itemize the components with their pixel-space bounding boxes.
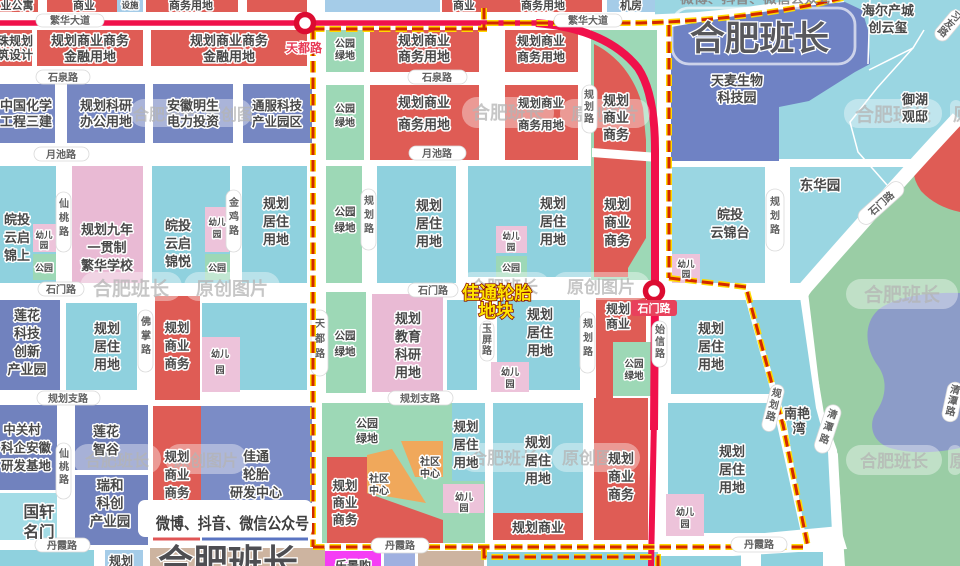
svg-text:规划路: 规划路 — [583, 317, 594, 358]
svg-text:金融用地: 金融用地 — [63, 49, 116, 64]
svg-text:科技园: 科技园 — [717, 90, 756, 105]
svg-text:规划九年: 规划九年 — [81, 222, 133, 237]
svg-text:规划商业: 规划商业 — [398, 95, 450, 110]
svg-text:天都路: 天都路 — [314, 318, 326, 360]
svg-text:规划支路: 规划支路 — [48, 392, 89, 405]
svg-text:天麦生物: 天麦生物 — [711, 73, 763, 88]
svg-text:绿地: 绿地 — [335, 221, 356, 234]
svg-text:用地: 用地 — [526, 343, 553, 358]
svg-text:石泉路: 石泉路 — [47, 71, 79, 84]
svg-text:绿地: 绿地 — [356, 431, 378, 445]
svg-text:皖投: 皖投 — [4, 212, 30, 227]
svg-text:产业园: 产业园 — [90, 513, 131, 529]
svg-text:云锦台: 云锦台 — [710, 225, 749, 240]
svg-text:珠规划: 珠规划 — [0, 33, 33, 48]
svg-text:居住: 居住 — [698, 339, 724, 354]
svg-text:幼儿: 幼儿 — [677, 259, 695, 269]
svg-text:园: 园 — [680, 519, 689, 529]
svg-text:合肥班长: 合肥班长 — [93, 277, 170, 300]
svg-text:仙桃路: 仙桃路 — [59, 197, 70, 238]
svg-text:研发基地: 研发基地 — [1, 458, 52, 473]
svg-text:规划路: 规划路 — [364, 194, 375, 235]
svg-text:用地: 用地 — [697, 357, 724, 372]
svg-text:观邸: 观邸 — [902, 109, 928, 124]
svg-text:工程三建: 工程三建 — [0, 114, 52, 129]
svg-text:安徽明生: 安徽明生 — [167, 98, 219, 113]
svg-text:绿地: 绿地 — [335, 345, 356, 358]
svg-text:规划路: 规划路 — [584, 88, 595, 125]
svg-text:规划: 规划 — [540, 196, 566, 211]
svg-text:幼儿: 幼儿 — [501, 366, 519, 377]
svg-text:教育: 教育 — [394, 329, 421, 344]
svg-text:用地: 用地 — [539, 232, 566, 247]
svg-text:丹霞路: 丹霞路 — [385, 539, 416, 552]
svg-text:规划商业商务: 规划商业商务 — [51, 33, 130, 48]
svg-text:规划科研: 规划科研 — [80, 98, 132, 113]
svg-text:规划: 规划 — [416, 198, 442, 213]
svg-text:商务用地: 商务用地 — [398, 49, 450, 64]
svg-text:规划: 规划 — [263, 196, 289, 211]
svg-text:佳通: 佳通 — [243, 449, 269, 464]
svg-text:用地: 用地 — [93, 357, 120, 372]
svg-text:公园: 公园 — [35, 263, 53, 273]
svg-text:科研: 科研 — [395, 347, 421, 362]
svg-text:公园: 公园 — [335, 330, 356, 342]
svg-text:用地: 用地 — [394, 365, 421, 380]
svg-text:佳通轮胎: 佳通轮胎 — [462, 283, 532, 303]
svg-text:规划: 规划 — [527, 307, 553, 322]
svg-text:公园: 公园 — [335, 206, 356, 218]
svg-text:商业: 商业 — [608, 469, 634, 484]
svg-text:玉屏路: 玉屏路 — [481, 323, 493, 357]
svg-text:商务用地: 商务用地 — [518, 118, 564, 132]
svg-text:产业园区: 产业园区 — [252, 114, 303, 129]
svg-text:幼儿: 幼儿 — [455, 491, 473, 502]
svg-text:月池路: 月池路 — [421, 147, 453, 160]
svg-text:莲花: 莲花 — [93, 424, 119, 439]
svg-text:商务用地: 商务用地 — [398, 117, 450, 132]
svg-text:皖投: 皖投 — [717, 207, 743, 222]
svg-text:莲花: 莲花 — [14, 308, 40, 323]
svg-text:原创图片: 原创图片 — [567, 277, 635, 297]
svg-text:居住: 居住 — [525, 453, 551, 468]
svg-text:用地: 用地 — [262, 232, 289, 247]
svg-text:商务: 商务 — [603, 127, 630, 142]
svg-text:皖投: 皖投 — [165, 218, 191, 233]
svg-text:国轩: 国轩 — [23, 502, 55, 521]
svg-text:一贯制: 一贯制 — [87, 240, 126, 255]
svg-text:公园: 公园 — [335, 103, 355, 115]
svg-text:湾: 湾 — [792, 421, 805, 436]
svg-text:金融用地: 金融用地 — [202, 49, 255, 64]
svg-text:石泉路: 石泉路 — [421, 71, 453, 84]
svg-text:公园: 公园 — [356, 417, 378, 430]
svg-text:规划: 规划 — [164, 449, 189, 464]
svg-text:繁华大道: 繁华大道 — [49, 14, 90, 27]
svg-text:石门路: 石门路 — [417, 284, 449, 297]
svg-text:商务用地: 商务用地 — [169, 0, 213, 12]
svg-text:繁华学校: 繁华学校 — [81, 258, 134, 273]
svg-text:原: 原 — [953, 105, 960, 125]
svg-text:办公用地: 办公用地 — [80, 114, 132, 129]
svg-text:通服科技: 通服科技 — [252, 98, 303, 113]
svg-text:绿地: 绿地 — [335, 116, 355, 129]
svg-text:锦悦: 锦悦 — [165, 254, 191, 269]
svg-text:幼儿: 幼儿 — [676, 506, 694, 517]
svg-text:园: 园 — [459, 503, 468, 513]
svg-text:商业: 商业 — [606, 316, 630, 331]
svg-text:石门路: 石门路 — [637, 301, 672, 315]
svg-text:佛掌路: 佛掌路 — [140, 315, 152, 356]
svg-text:筑设计: 筑设计 — [0, 47, 33, 62]
svg-text:幼儿: 幼儿 — [35, 230, 53, 240]
svg-text:园: 园 — [682, 269, 691, 279]
svg-text:商业: 商业 — [332, 495, 358, 510]
svg-text:御湖: 御湖 — [901, 92, 928, 107]
svg-text:规划路: 规划路 — [770, 195, 781, 236]
svg-text:规划: 规划 — [606, 301, 630, 316]
svg-text:居住: 居住 — [540, 214, 566, 229]
svg-text:幼儿: 幼儿 — [211, 348, 229, 359]
svg-text:中国化学: 中国化学 — [0, 98, 52, 113]
svg-text:规划: 规划 — [395, 311, 421, 326]
svg-text:幼儿: 幼儿 — [208, 217, 226, 227]
svg-text:科创: 科创 — [97, 495, 124, 511]
svg-text:乐景购: 乐景购 — [335, 558, 371, 566]
svg-text:园: 园 — [507, 242, 516, 252]
svg-text:商务: 商务 — [608, 487, 635, 502]
svg-text:公园: 公园 — [208, 263, 226, 273]
svg-text:规划: 规划 — [332, 478, 357, 493]
svg-text:石门路: 石门路 — [45, 283, 77, 296]
svg-text:公园: 公园 — [624, 359, 643, 370]
svg-text:原创图片: 原创图片 — [196, 278, 268, 299]
svg-text:规划商业: 规划商业 — [517, 33, 565, 48]
svg-text:商业: 商业 — [164, 338, 190, 353]
svg-text:月池路: 月池路 — [45, 148, 77, 161]
svg-text:规划: 规划 — [698, 321, 724, 336]
svg-text:合肥班长: 合肥班长 — [690, 20, 829, 58]
svg-text:园: 园 — [505, 379, 514, 389]
svg-text:仙桃路: 仙桃路 — [59, 447, 70, 486]
svg-text:云启: 云启 — [4, 230, 30, 245]
svg-text:绿地: 绿地 — [335, 49, 355, 62]
svg-text:商业: 商业 — [73, 0, 95, 12]
svg-text:合肥班长: 合肥班长 — [158, 542, 298, 566]
svg-text:研发中心: 研发中心 — [230, 485, 282, 500]
svg-text:天都路: 天都路 — [286, 40, 323, 55]
svg-text:用地: 用地 — [524, 471, 551, 486]
svg-text:商业: 商业 — [604, 215, 630, 230]
svg-text:园: 园 — [40, 240, 49, 250]
svg-text:规划: 规划 — [109, 553, 133, 566]
svg-text:社区: 社区 — [419, 455, 440, 468]
svg-text:科企安徽: 科企安徽 — [1, 440, 52, 455]
svg-text:商业: 商业 — [603, 110, 629, 125]
svg-text:丹霞路: 丹霞路 — [744, 538, 775, 551]
svg-text:商务用地: 商务用地 — [517, 49, 565, 64]
svg-text:合肥班长: 合肥班长 — [864, 283, 941, 306]
svg-text:居住: 居住 — [453, 437, 479, 452]
svg-text:幼儿: 幼儿 — [502, 231, 520, 241]
svg-text:机房: 机房 — [620, 0, 642, 12]
svg-text:锦上: 锦上 — [4, 248, 30, 263]
svg-text:居住: 居住 — [94, 339, 120, 354]
svg-text:商业: 商业 — [164, 467, 190, 482]
svg-text:居住: 居住 — [719, 462, 745, 477]
svg-text:居住: 居住 — [416, 216, 442, 231]
svg-text:瑞和: 瑞和 — [97, 477, 124, 493]
svg-text:商务: 商务 — [332, 512, 358, 527]
svg-text:设施: 设施 — [121, 0, 139, 10]
svg-text:规划: 规划 — [525, 435, 551, 450]
svg-text:商务用地: 商务用地 — [521, 0, 565, 12]
svg-text:公园: 公园 — [335, 38, 355, 50]
svg-text:用地: 用地 — [415, 234, 442, 249]
svg-text:电力投资: 电力投资 — [167, 114, 219, 129]
svg-text:规划: 规划 — [603, 93, 629, 108]
svg-text:规划商业: 规划商业 — [518, 96, 564, 110]
svg-text:创云玺: 创云玺 — [867, 20, 907, 35]
svg-text:规划商业商务: 规划商业商务 — [190, 33, 269, 48]
svg-text:名门: 名门 — [23, 522, 54, 541]
svg-text:园: 园 — [213, 229, 222, 239]
svg-text:居住: 居住 — [263, 214, 289, 229]
svg-text:商务: 商务 — [164, 356, 190, 371]
svg-text:微博、抖音、微信公众号: 微博、抖音、微信公众号 — [155, 514, 309, 533]
svg-text:轮胎: 轮胎 — [243, 467, 269, 482]
svg-text:园: 园 — [215, 365, 224, 375]
svg-text:科技: 科技 — [14, 326, 41, 341]
svg-text:规划: 规划 — [453, 419, 478, 434]
svg-text:地块: 地块 — [479, 301, 514, 321]
svg-text:规划: 规划 — [94, 321, 120, 336]
svg-text:商务: 商务 — [164, 485, 190, 500]
svg-text:微博、抖音、微信公众号: 微博、抖音、微信公众号 — [679, 0, 832, 7]
svg-text:公园: 公园 — [502, 263, 520, 273]
svg-text:商务: 商务 — [604, 233, 631, 248]
svg-text:始信路: 始信路 — [655, 323, 666, 360]
svg-text:东华园: 东华园 — [800, 177, 841, 193]
svg-text:云启: 云启 — [165, 236, 191, 251]
svg-text:社区: 社区 — [368, 472, 389, 485]
svg-text:规划: 规划 — [719, 444, 745, 459]
svg-text:商业: 商业 — [453, 0, 475, 12]
svg-text:中关村: 中关村 — [3, 422, 41, 437]
svg-text:规划商业: 规划商业 — [512, 520, 564, 535]
svg-text:创新: 创新 — [13, 344, 40, 359]
svg-text:产业园: 产业园 — [7, 362, 46, 377]
svg-text:海尔产城: 海尔产城 — [862, 3, 914, 18]
svg-text:用地: 用地 — [452, 455, 479, 470]
svg-text:南艳: 南艳 — [784, 406, 810, 421]
svg-text:中心: 中心 — [369, 484, 389, 497]
svg-text:智谷: 智谷 — [93, 442, 120, 457]
svg-text:用地: 用地 — [718, 480, 745, 495]
svg-text:规划: 规划 — [608, 451, 634, 466]
svg-text:规划商业: 规划商业 — [398, 33, 450, 48]
svg-text:金鸡路: 金鸡路 — [228, 196, 240, 237]
svg-text:原: 原 — [950, 452, 960, 471]
svg-text:规划: 规划 — [604, 197, 630, 212]
svg-text:规划支路: 规划支路 — [400, 392, 441, 405]
svg-text:繁华大道: 繁华大道 — [567, 14, 608, 27]
svg-text:绿地: 绿地 — [624, 370, 644, 382]
svg-text:业公寓: 业公寓 — [1, 0, 34, 12]
svg-text:规划: 规划 — [164, 320, 189, 335]
svg-text:中心: 中心 — [420, 467, 440, 480]
svg-text:合肥班长: 合肥班长 — [860, 451, 929, 471]
svg-text:居住: 居住 — [527, 325, 553, 340]
